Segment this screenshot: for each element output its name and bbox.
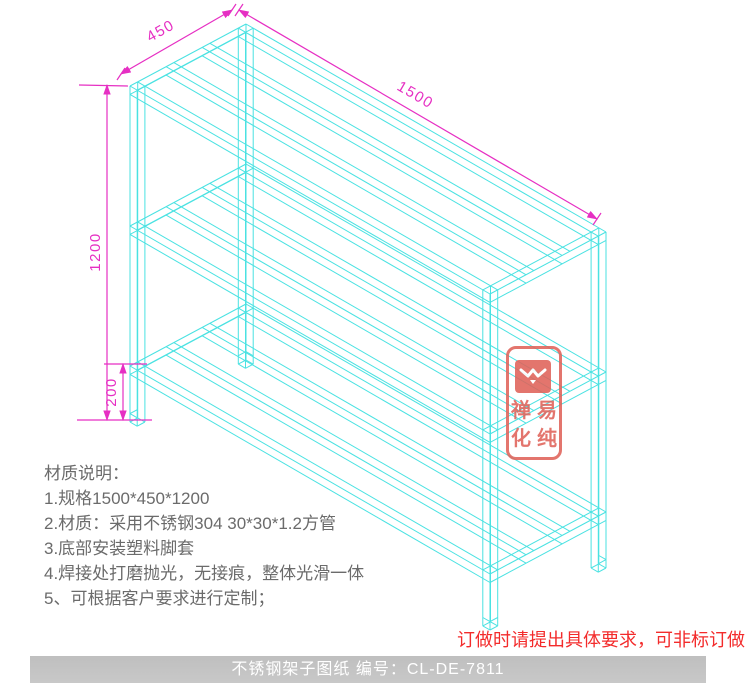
dim-tick xyxy=(235,4,243,16)
material-notes: 材质说明： 1.规格1500*450*1200 2.材质：采用不锈钢304 30… xyxy=(44,461,364,611)
stamp-seal-characters: 禅 易 化 纯 xyxy=(508,398,560,454)
dim-tick xyxy=(117,68,125,80)
custom-order-notice: 订做时请提出具体要求，可非标订做 xyxy=(457,626,745,652)
dimension-label-height: 1200 xyxy=(87,232,104,271)
dim-tick xyxy=(593,213,601,225)
page: 450 1500 1200 200 禅 易 化 纯 材质说明： 1.规格1500… xyxy=(0,0,750,688)
dim-tick xyxy=(228,4,236,16)
title-bar: 不锈钢架子图纸 编号：CL-DE-7811 xyxy=(30,656,706,683)
bird-wings-icon xyxy=(519,367,547,387)
dimension-label-depth: 450 xyxy=(144,16,178,45)
note-line: 5、可根据客户要求进行定制； xyxy=(44,586,364,611)
stamp-char: 化 xyxy=(508,426,534,454)
stamp-logo-box xyxy=(515,360,551,393)
note-line: 3.底部安装塑料脚套 xyxy=(44,536,364,561)
stamp-char: 纯 xyxy=(534,426,560,454)
dim-line-1500 xyxy=(239,10,597,219)
note-line: 1.规格1500*450*1200 xyxy=(44,486,364,511)
dimension-label-bottom-clearance: 200 xyxy=(103,377,120,407)
drawing-title: 不锈钢架子图纸 编号：CL-DE-7811 xyxy=(30,656,706,683)
brand-stamp: 禅 易 化 纯 xyxy=(504,344,564,460)
stamp-char: 易 xyxy=(534,398,560,426)
dim-extension xyxy=(79,85,128,86)
material-notes-title: 材质说明： xyxy=(44,461,364,486)
dimension-label-length: 1500 xyxy=(394,78,437,112)
stamp-char: 禅 xyxy=(508,398,534,426)
note-line: 4.焊接处打磨抛光，无接痕，整体光滑一体 xyxy=(44,561,364,586)
note-line: 2.材质：采用不锈钢304 30*30*1.2方管 xyxy=(44,511,364,536)
